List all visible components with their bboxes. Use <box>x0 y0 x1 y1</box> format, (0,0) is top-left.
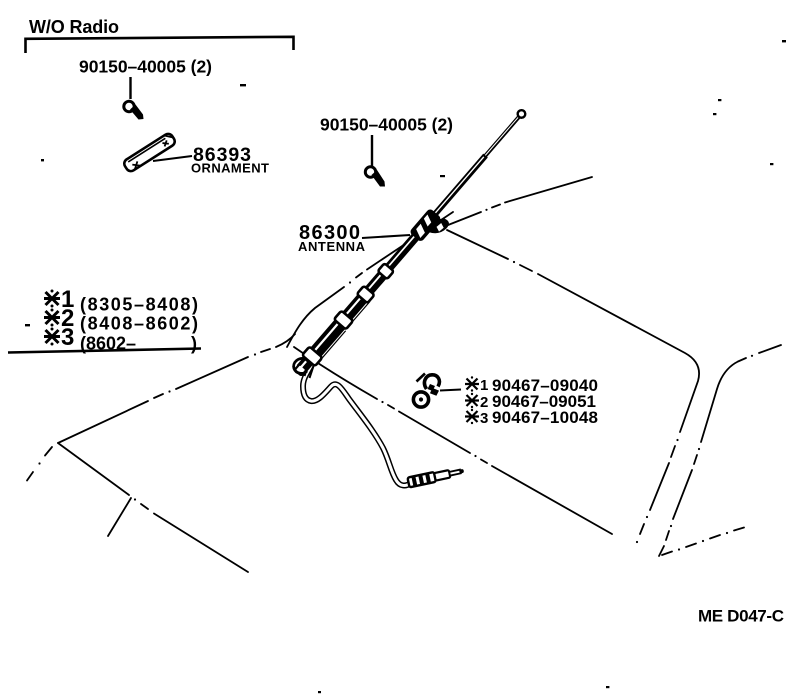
svg-text:90150–40005 (2): 90150–40005 (2) <box>320 115 453 135</box>
svg-text:): ) <box>191 334 197 354</box>
svg-text:90150–40005 (2): 90150–40005 (2) <box>79 57 212 77</box>
svg-text:1: 1 <box>480 377 488 394</box>
svg-text:90467–10048: 90467–10048 <box>492 408 598 427</box>
svg-text:3: 3 <box>61 324 74 351</box>
svg-text:ANTENNA: ANTENNA <box>298 239 366 254</box>
svg-text:ME D047-C: ME D047-C <box>698 607 784 626</box>
svg-text:ORNAMENT: ORNAMENT <box>191 161 269 176</box>
svg-text:2: 2 <box>480 394 488 411</box>
svg-text:W/O Radio: W/O Radio <box>29 17 119 37</box>
svg-text:3: 3 <box>480 410 488 427</box>
